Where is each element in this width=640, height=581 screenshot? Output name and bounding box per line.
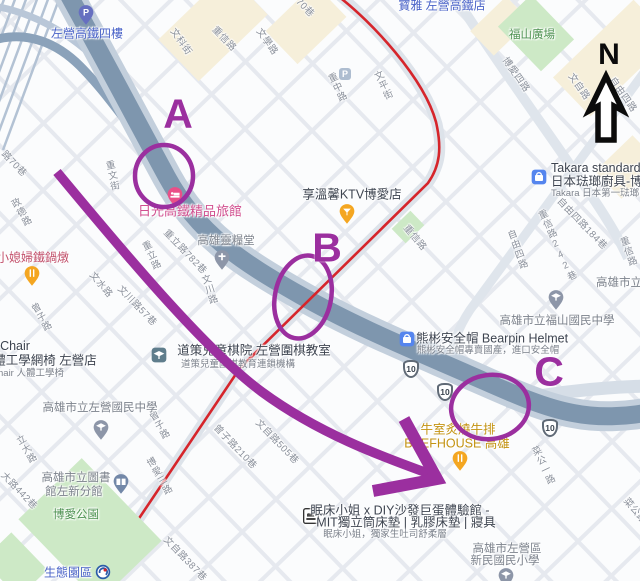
poi-label-library-2[interactable]: 館左新分館 xyxy=(45,483,103,499)
parking-glyph: P xyxy=(83,8,89,18)
zuoying-jhs-pin-icon[interactable] xyxy=(93,419,110,440)
library-pin-icon[interactable] xyxy=(113,473,130,494)
xinmin-school-pin-icon[interactable] xyxy=(498,567,515,581)
compass-north-label: N xyxy=(598,38,620,72)
poi-label-fushan-plaza[interactable]: 福山廣場 xyxy=(509,26,555,42)
poi-label-hotpot[interactable]: 小媳婦鐵鍋燉 xyxy=(0,249,69,266)
ktv-pin-icon[interactable] xyxy=(339,203,356,224)
poi-label-sunlight-hotel[interactable]: 日光高鐵精品旅館 xyxy=(138,201,242,220)
beefhouse-pin-icon[interactable] xyxy=(452,450,469,471)
poi-sublabel-bedshop: 眠床小姐，獨家生吐司舒柔層 xyxy=(323,526,447,540)
map-canvas[interactable]: 文科街 重信路 文學路 70巷 重中路 文平街 博愛四路 自由四路 文自路 政德… xyxy=(0,0,640,581)
annotation-letter-a: A xyxy=(163,91,193,138)
poi-label-church[interactable]: 高雄靈糧堂 xyxy=(197,232,255,248)
poi-label-fushan-jhs[interactable]: 高雄市立福山國民中學 xyxy=(500,312,615,328)
poi-label-boai-park[interactable]: 博愛公園 xyxy=(53,506,99,522)
poi-label-cut-right: 高雄市立 xyxy=(596,274,640,290)
surface-parking-icon: P xyxy=(339,68,351,80)
annotation-letter-b: B xyxy=(312,225,342,272)
takara-store-icon[interactable] xyxy=(531,168,547,186)
poi-label-zuoying-jhs[interactable]: 高雄市立左營國民中學 xyxy=(43,399,158,415)
church-pin-icon[interactable] xyxy=(214,249,231,270)
mrt-station-icon[interactable] xyxy=(96,565,111,580)
poi-label-takara-3: Takara 日本第一琺瑯 xyxy=(551,185,639,199)
poi-label-beefhouse-2[interactable]: BEEFHOUSE 高雄 xyxy=(404,433,510,452)
fushan-jhs-pin-icon[interactable] xyxy=(548,289,565,310)
poi-sublabel-chair: hair 人體工學椅 xyxy=(0,365,64,379)
poi-label-xinmin-2[interactable]: 新民國民小學 xyxy=(471,552,540,568)
bearpin-store-icon[interactable] xyxy=(399,330,415,348)
parking-pin-icon[interactable]: P xyxy=(78,4,95,25)
hotpot-pin-icon[interactable] xyxy=(24,265,41,286)
poi-label-eco-station[interactable]: 生態園區 xyxy=(44,564,92,581)
go-school-icon[interactable] xyxy=(151,346,167,364)
annotation-letter-c: C xyxy=(534,349,564,396)
poi-sublabel-go-school: 道策兒童圍棋教育連鎖機構 xyxy=(181,356,295,370)
poi-label-hsr-parking[interactable]: 左營高鐵四樓 xyxy=(51,25,123,42)
poi-label-poya[interactable]: 寶雅 左營高鐵店 xyxy=(398,0,485,14)
poi-label-ktv[interactable]: 享溫馨KTV博愛店 xyxy=(302,184,401,203)
